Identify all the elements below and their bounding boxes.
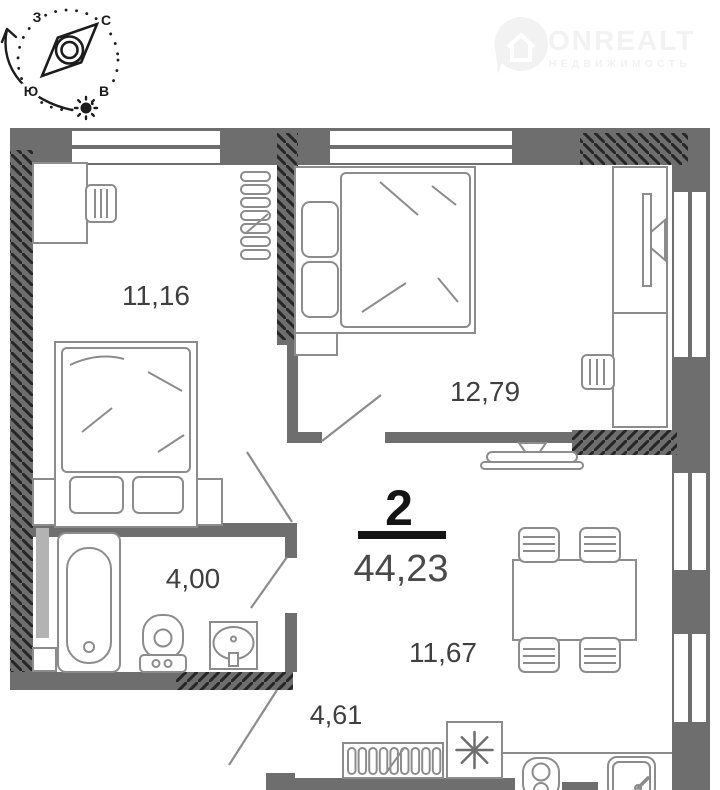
dining-chair [519, 638, 559, 672]
summary-divider [358, 531, 446, 539]
area-label-bedroom1: 11,16 [122, 280, 190, 311]
kitchen-appliance-burners [523, 758, 559, 790]
compass-east-label: В [99, 83, 109, 99]
pillow [302, 202, 338, 257]
window-bedroom2-top [330, 131, 512, 163]
pillow [70, 477, 123, 513]
wall-bathroom-east-stub [285, 523, 297, 558]
nightstand-left [33, 479, 55, 525]
sun-icon [75, 97, 97, 119]
window-living-lower [674, 634, 706, 722]
sink-bathroom [210, 622, 257, 669]
dining-table [513, 560, 636, 640]
floor-plan-canvas: З С Ю В ONREALT НЕДВИЖИМОСТЬ [0, 0, 720, 790]
kitchen-dark-block [562, 782, 598, 790]
compass-hub-inner [62, 42, 78, 58]
kitchen-sink [608, 757, 655, 790]
bathtub [58, 533, 120, 672]
dining-chair [580, 528, 620, 562]
desk-bedroom2 [613, 167, 667, 427]
bed-bedroom1 [55, 342, 197, 527]
window-living-upper [674, 473, 706, 570]
wall-bedroom2-door-stub [287, 432, 322, 443]
area-label-bathroom: 4,00 [166, 563, 221, 594]
window-bedroom2-right [674, 192, 706, 357]
compass-west-label: З [33, 9, 42, 25]
floor-plan-page: З С Ю В ONREALT НЕДВИЖИМОСТЬ [0, 0, 720, 790]
radiator-bedroom1 [241, 172, 270, 259]
bathroom-corner-unit [33, 648, 56, 671]
wall-bathroom-east [285, 613, 297, 672]
compass-south-label: Ю [24, 83, 38, 99]
desk-bedroom1 [33, 163, 87, 243]
asterisk-icon [457, 732, 493, 768]
wall-bedroom2-south [385, 432, 575, 443]
bed-bedroom2 [295, 167, 475, 333]
area-label-bedroom2: 12,79 [450, 376, 520, 407]
dining-chair [519, 528, 559, 562]
chair-bedroom2 [582, 355, 614, 389]
total-area-label: 44,23 [353, 548, 448, 590]
radiator-kitchen [343, 743, 443, 778]
logo-tagline-text: НЕДВИЖИМОСТЬ [549, 59, 691, 70]
pillow [133, 477, 183, 513]
dining-chair [580, 638, 620, 672]
rooms-count-label: 2 [385, 480, 413, 536]
area-label-living: 11,67 [409, 637, 477, 668]
logo-brand-text: ONREALT [548, 25, 695, 56]
area-label-hallway: 4,61 [310, 700, 363, 730]
stove-unit [447, 722, 502, 778]
pillow [302, 262, 338, 317]
window-bedroom1 [72, 131, 220, 163]
nightstand-right [197, 479, 222, 525]
compass-north-label: С [101, 12, 111, 28]
duct-shaft [36, 528, 49, 638]
onrealt-logo: ONREALT НЕДВИЖИМОСТЬ [494, 17, 695, 74]
nightstand-bedroom2 [295, 333, 337, 355]
toilet [140, 615, 186, 672]
chair-bedroom1 [86, 185, 116, 222]
